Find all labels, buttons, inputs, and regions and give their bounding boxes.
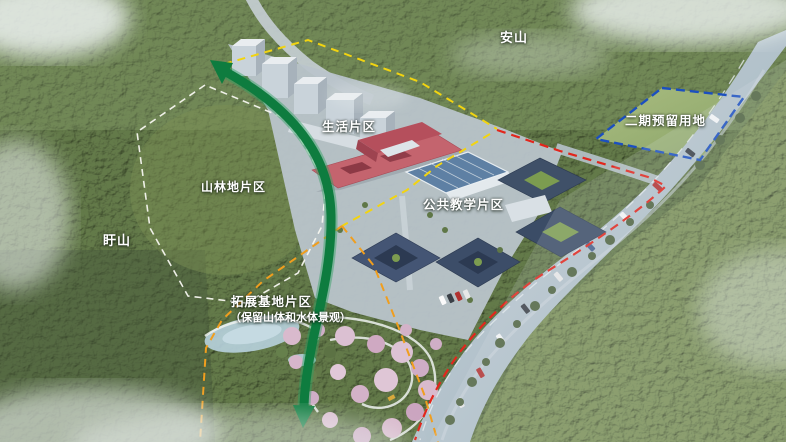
label-anshan: 安山 (500, 32, 528, 45)
label-teaching-zone: 公共教学片区 (423, 199, 504, 212)
haze-campus (328, 82, 408, 110)
masterplan-rendering (0, 0, 786, 442)
label-yushan: 盱山 (103, 235, 131, 248)
label-phase2-zone: 二期预留用地 (625, 115, 706, 128)
label-expansion-note: （保留山体和水体景观） (230, 312, 351, 323)
label-forest-zone: 山林地片区 (201, 181, 266, 193)
masterplan-screenshot: 安山 生活片区 山林地片区 盱山 公共教学片区 二期预留用地 拓展基地片区 （保… (0, 0, 786, 442)
label-living-zone: 生活片区 (322, 121, 376, 134)
label-expansion-zone: 拓展基地片区 (231, 296, 312, 309)
haze-topcenter (450, 33, 610, 77)
